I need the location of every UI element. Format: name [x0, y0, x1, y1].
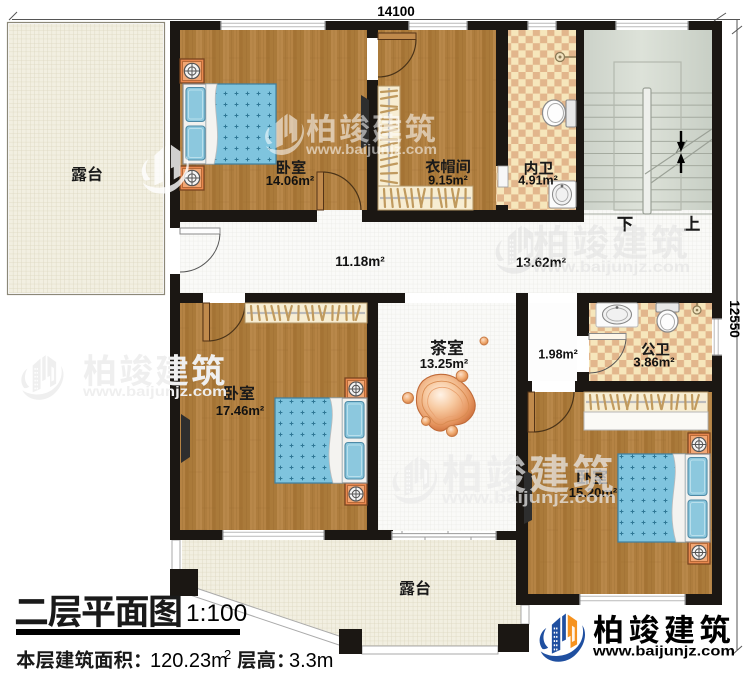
svg-text:120.23m: 120.23m	[150, 650, 228, 672]
svg-text:1:100: 1:100	[186, 600, 247, 627]
svg-text:14.06m²: 14.06m²	[266, 173, 315, 188]
svg-text:17.46m²: 17.46m²	[216, 403, 265, 418]
svg-text:14100: 14100	[377, 4, 415, 19]
svg-text:13.25m²: 13.25m²	[420, 356, 469, 371]
svg-text:www.baijunjz.com: www.baijunjz.com	[532, 259, 690, 276]
svg-text:www.baijunjz.com: www.baijunjz.com	[82, 383, 227, 399]
svg-text:3.86m²: 3.86m²	[633, 355, 675, 370]
svg-text:1.98m²: 1.98m²	[538, 348, 578, 362]
svg-text:12550: 12550	[727, 300, 742, 338]
svg-text:2: 2	[224, 647, 231, 662]
svg-text:9.15m²: 9.15m²	[428, 174, 468, 188]
svg-text:3.3m: 3.3m	[289, 650, 333, 672]
svg-text:4.91m²: 4.91m²	[518, 174, 558, 188]
svg-text:www.baijunjz.com: www.baijunjz.com	[305, 142, 437, 157]
svg-text:www.baijunjz.com: www.baijunjz.com	[592, 644, 735, 659]
svg-text:11.18m²: 11.18m²	[335, 254, 385, 269]
svg-text:www.baijunjz.com: www.baijunjz.com	[441, 488, 616, 507]
